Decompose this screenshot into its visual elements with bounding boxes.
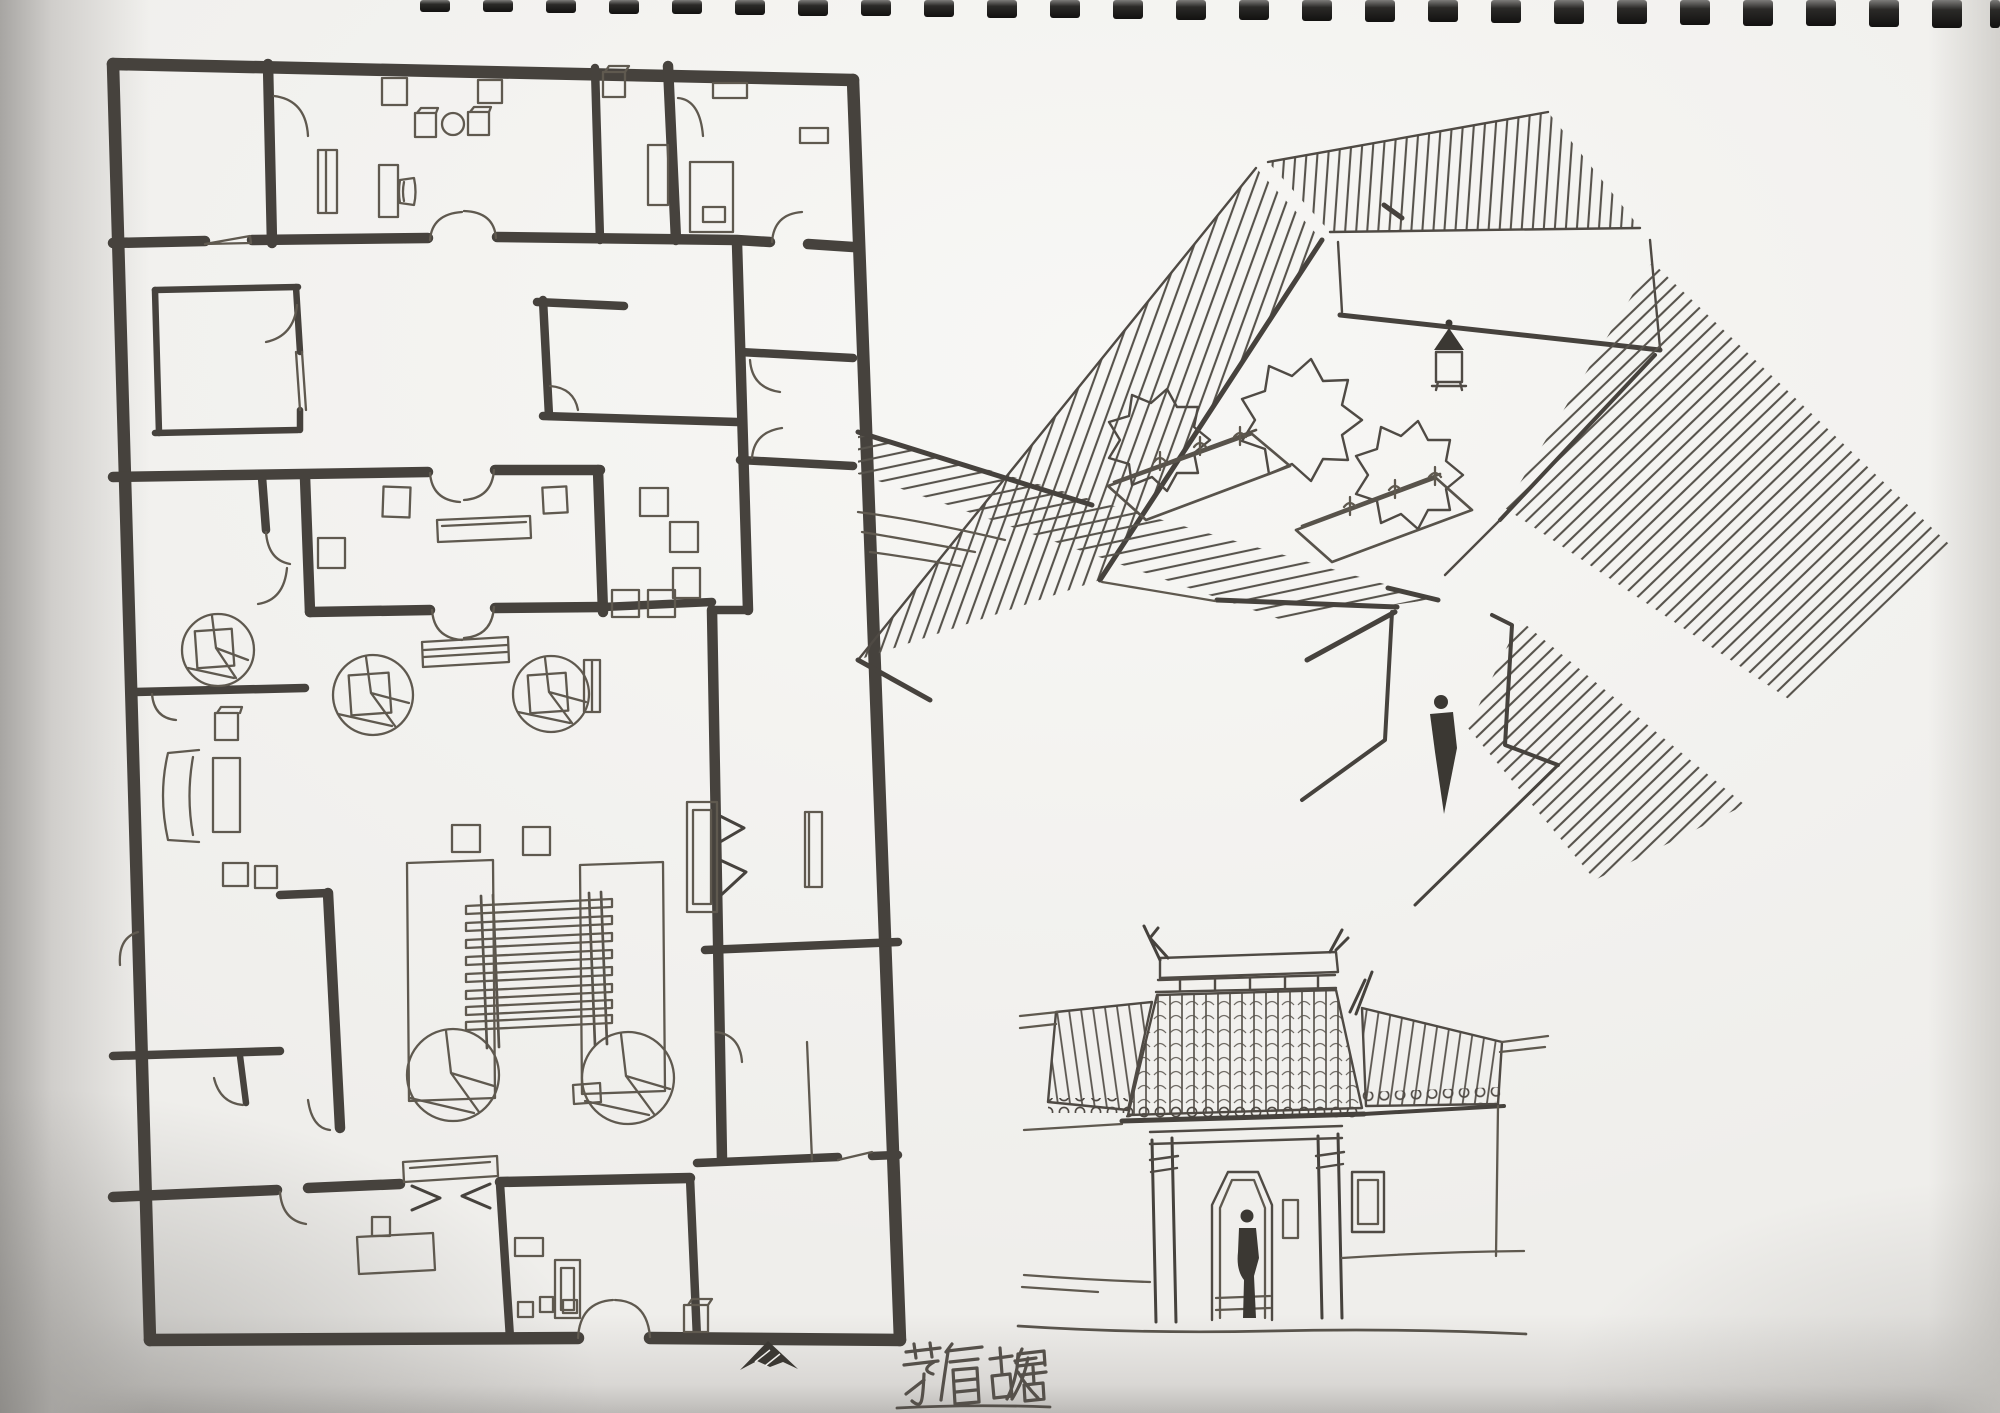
caption-handwriting [897, 1343, 1050, 1408]
binding-hole [1743, 0, 1773, 26]
gate-roof [1020, 926, 1548, 1130]
plan-trellis [407, 860, 665, 1101]
binding-hole [798, 0, 828, 16]
kitchen-table [357, 1233, 435, 1274]
aerial-sketch [858, 112, 1950, 905]
roof-far [1268, 112, 1640, 232]
tree-symbol [333, 655, 413, 735]
binding-hole [1176, 0, 1206, 20]
binding-hole [609, 0, 639, 14]
binding-hole [1806, 0, 1836, 26]
binding-hole [483, 0, 513, 12]
roof-right [1445, 262, 1950, 880]
plan-doors [120, 96, 872, 1338]
floor-plan-drawing [113, 64, 900, 1340]
spiral-binding [420, 0, 2000, 28]
sketch-canvas [0, 0, 2000, 1413]
gate-windows [1283, 1172, 1384, 1238]
binding-hole [1932, 0, 1962, 28]
tree-symbol [513, 656, 589, 732]
caption-underline [897, 1406, 1050, 1408]
slat-bench [422, 637, 509, 667]
tree-symbol [407, 1029, 499, 1121]
binding-hole [1617, 0, 1647, 24]
walking-figure [1430, 695, 1457, 814]
sofa [163, 750, 199, 842]
tree-symbol [182, 614, 254, 686]
binding-hole [861, 0, 891, 16]
binding-hole [1491, 0, 1521, 23]
desk [379, 165, 398, 217]
coffee-table [213, 758, 240, 832]
folding-screen [687, 802, 746, 912]
binding-hole [735, 0, 765, 15]
sketchbook-page: 茅盾故居 [0, 0, 2000, 1413]
binding-hole [924, 0, 954, 17]
binding-hole [1302, 0, 1332, 21]
gate-elevation [1018, 926, 1548, 1334]
binding-hole [672, 0, 702, 14]
binding-hole [1365, 0, 1395, 22]
binding-hole [1428, 0, 1458, 22]
binding-hole [1680, 0, 1710, 25]
binding-hole [1554, 0, 1584, 24]
binding-hole [1990, 0, 2000, 28]
binding-hole [987, 0, 1017, 18]
binding-hole [420, 0, 450, 12]
altar-table [437, 516, 531, 542]
binding-hole [546, 0, 576, 13]
gate-doorway [1212, 1172, 1272, 1320]
binding-hole [1869, 0, 1899, 27]
binding-hole [1239, 0, 1269, 20]
plan-walls [113, 64, 900, 1340]
binding-hole [1050, 0, 1080, 18]
chair [399, 178, 416, 205]
plan-furniture [163, 66, 828, 1332]
figure-in-doorway [1238, 1210, 1259, 1319]
binding-hole [1113, 0, 1143, 19]
